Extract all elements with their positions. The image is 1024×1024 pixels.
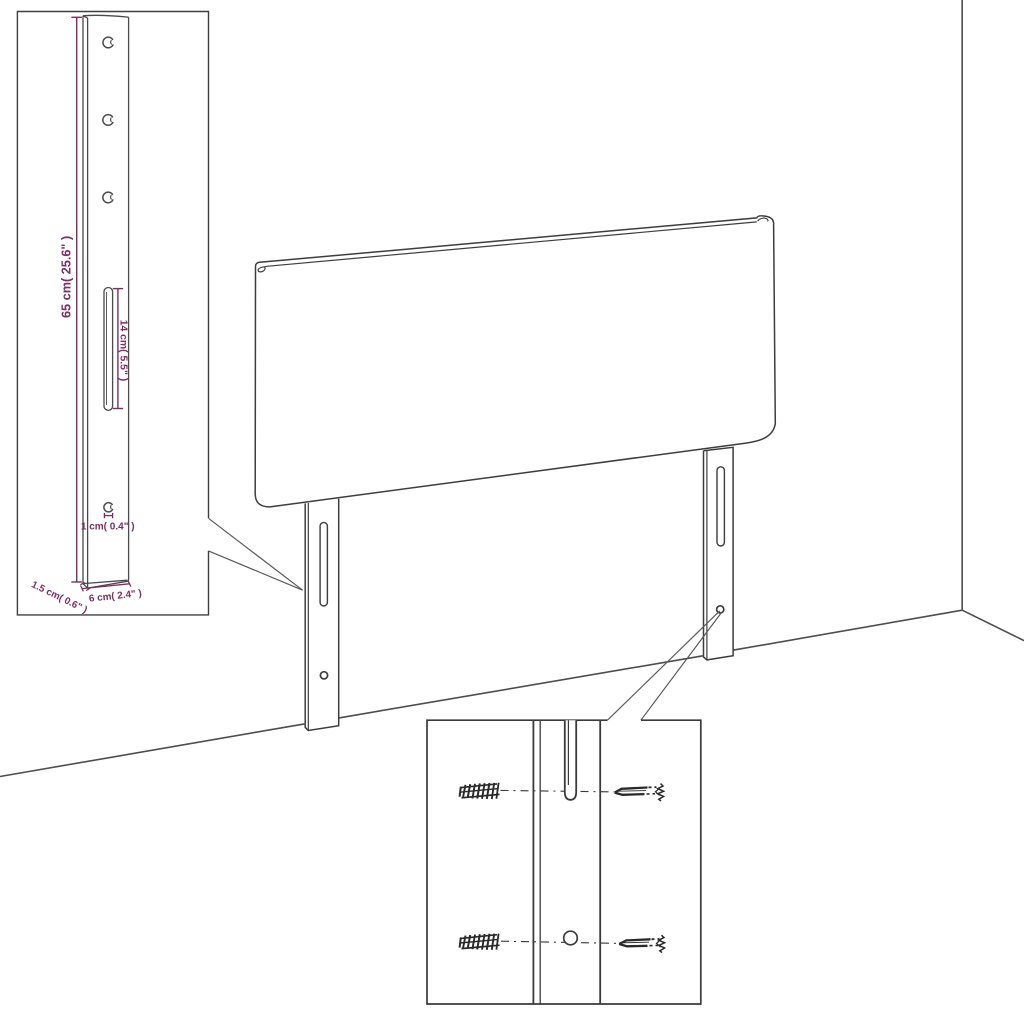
svg-text:14 cm( 5.5" ): 14 cm( 5.5" ) (118, 320, 129, 382)
svg-text:1 cm( 0.4" ): 1 cm( 0.4" ) (81, 522, 135, 533)
svg-text:65 cm( 25.6" ): 65 cm( 25.6" ) (59, 236, 73, 318)
